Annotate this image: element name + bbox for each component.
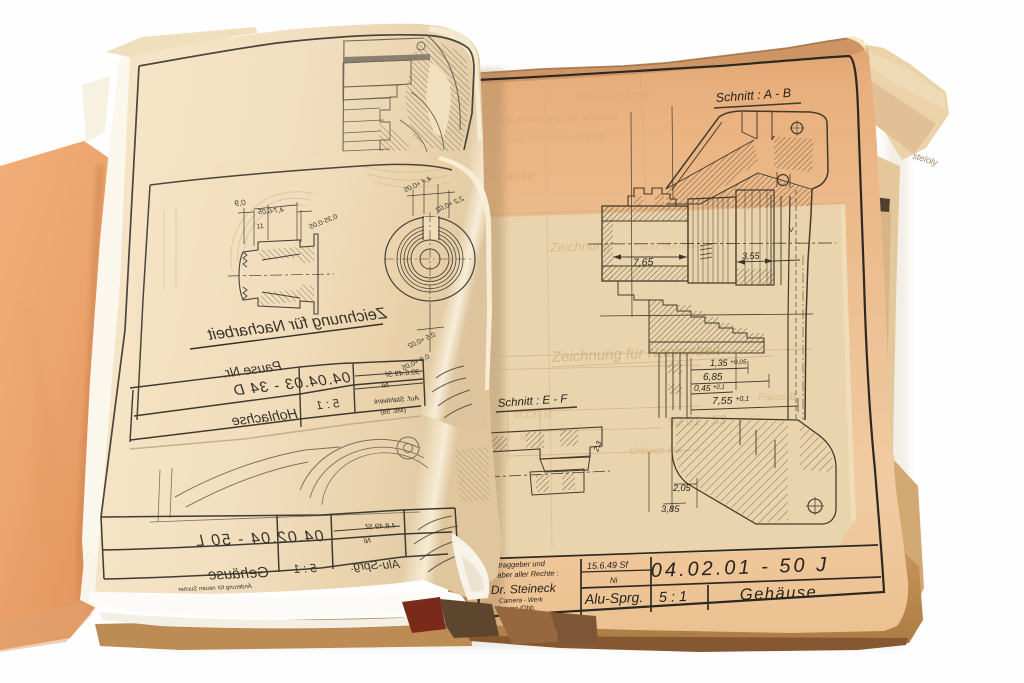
svg-text:Ni: Ni	[363, 536, 371, 545]
svg-text:6,85: 6,85	[703, 372, 723, 383]
svg-text:Gehäuse: Gehäuse	[740, 583, 818, 604]
svg-text:3,85: 3,85	[661, 504, 680, 515]
svg-text:4.8.49 Sf: 4.8.49 Sf	[365, 521, 396, 531]
svg-text:Ni: Ni	[610, 576, 618, 585]
svg-text:Alu-Sprg.: Alu-Sprg.	[350, 557, 402, 573]
svg-text:15.1.49 Sf: 15.1.49 Sf	[514, 411, 551, 420]
svg-text:15.6.49 Sf: 15.6.49 Sf	[587, 560, 630, 571]
svg-text:Alu-Sprg.: Alu-Sprg.	[584, 589, 644, 607]
svg-text:Ni: Ni	[381, 380, 389, 390]
svg-text:2,05: 2,05	[672, 483, 692, 493]
svg-text:5 : 1: 5 : 1	[659, 589, 688, 606]
svg-text:5 : 1: 5 : 1	[293, 561, 317, 576]
svg-text:Pause B: Pause B	[758, 392, 796, 403]
svg-text:0,9: 0,9	[234, 198, 246, 208]
svg-text:und Vordruck: und Vordruck	[640, 239, 706, 253]
svg-text:V: V	[789, 227, 794, 234]
svg-text:Gehäuse: Gehäuse	[481, 167, 534, 185]
svg-text:11: 11	[256, 223, 264, 231]
svg-text:5 : 1: 5 : 1	[316, 396, 341, 412]
svg-text:7,65: 7,65	[633, 256, 654, 269]
svg-text:Dr. Steineck: Dr. Steineck	[491, 581, 557, 597]
svg-text:3,55: 3,55	[742, 251, 761, 261]
svg-text:Gehäuse: Gehäuse	[208, 564, 270, 584]
